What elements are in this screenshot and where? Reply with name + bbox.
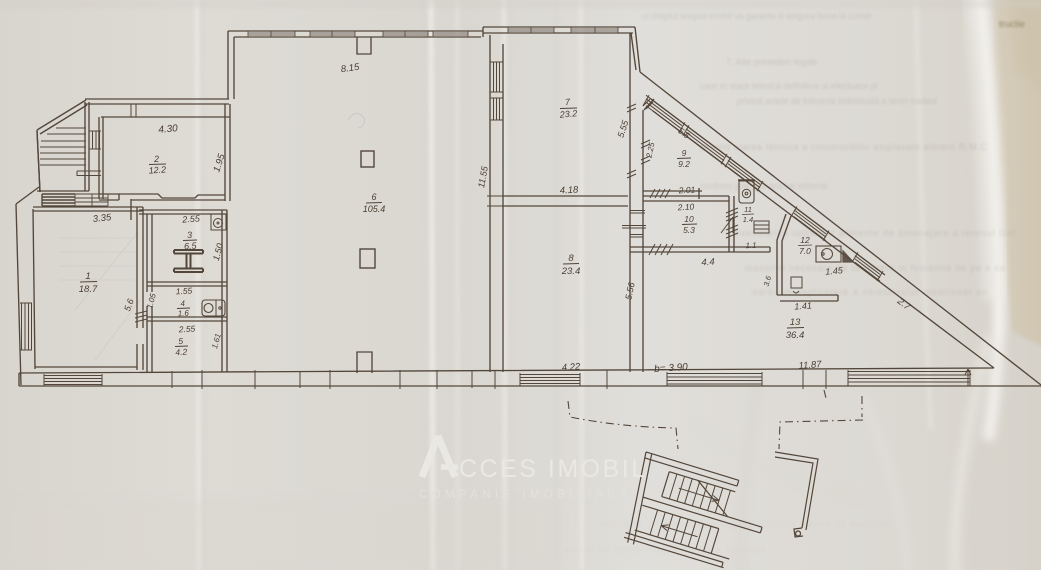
svg-text:5.3: 5.3 xyxy=(683,225,695,235)
svg-text:12.2: 12.2 xyxy=(148,164,166,175)
svg-text:2: 2 xyxy=(153,154,160,164)
svg-text:18.7: 18.7 xyxy=(79,284,98,295)
svg-text:4.18: 4.18 xyxy=(560,184,580,196)
svg-text:4.30: 4.30 xyxy=(158,123,179,136)
svg-text:4.2: 4.2 xyxy=(175,347,188,358)
svg-text:CCES IMOBIL: CCES IMOBIL xyxy=(459,455,648,483)
svg-text:8: 8 xyxy=(568,253,574,264)
svg-text:23.2: 23.2 xyxy=(558,108,577,120)
svg-text:6.5: 6.5 xyxy=(184,240,198,251)
svg-text:12: 12 xyxy=(800,235,810,245)
svg-text:9: 9 xyxy=(682,148,687,158)
svg-text:tructie: tructie xyxy=(999,19,1025,30)
svg-text:1.1: 1.1 xyxy=(745,241,757,251)
svg-text:10: 10 xyxy=(684,214,694,224)
svg-text:1.6: 1.6 xyxy=(177,309,189,319)
svg-text:9.2: 9.2 xyxy=(678,159,690,169)
svg-text:executarea lucrarilor aferente: executarea lucrarilor aferente de amenaj… xyxy=(735,228,1015,238)
svg-text:COMPANIE IMOBILIARĂ: COMPANIE IMOBILIARĂ xyxy=(419,488,632,501)
svg-text:2.55: 2.55 xyxy=(181,213,201,224)
svg-text:3.35: 3.35 xyxy=(92,212,112,225)
svg-text:11.87: 11.87 xyxy=(798,359,822,372)
svg-text:7. Alte prevederi legale: 7. Alte prevederi legale xyxy=(726,57,818,67)
svg-text:4.22: 4.22 xyxy=(561,361,581,373)
svg-text:3: 3 xyxy=(187,230,193,240)
svg-text:privind actele de folosinta in: privind actele de folosinta individuala … xyxy=(737,96,937,106)
svg-text:conform planului anexat eliber: conform planului anexat eliberat xyxy=(700,181,828,191)
svg-text:7.0: 7.0 xyxy=(799,246,811,256)
svg-text:6: 6 xyxy=(371,192,376,202)
svg-text:2.10: 2.10 xyxy=(676,202,694,213)
svg-text:1: 1 xyxy=(85,271,90,282)
svg-text:13: 13 xyxy=(790,317,801,328)
svg-text:1.55: 1.55 xyxy=(175,286,192,297)
svg-text:1.4: 1.4 xyxy=(743,215,753,224)
svg-text:4.4: 4.4 xyxy=(701,257,715,269)
svg-text:privind starea tehnica a const: privind starea tehnica a constructiilor … xyxy=(700,142,990,152)
svg-text:actul de proprietate asupra te: actul de proprietate asupra terenul xyxy=(565,544,765,554)
svg-text:23.4: 23.4 xyxy=(561,266,581,277)
svg-text:36.4: 36.4 xyxy=(786,330,805,341)
svg-text:1.41: 1.41 xyxy=(794,300,812,311)
svg-text:105.4: 105.4 xyxy=(363,204,386,214)
svg-text:care in stare tehnica definiti: care in stare tehnica definitiva si efec… xyxy=(700,81,878,91)
svg-text:ul dreptul asupra imobil va ga: ul dreptul asupra imobil va garanta si a… xyxy=(642,11,872,21)
svg-text:11: 11 xyxy=(744,205,752,214)
svg-text:2.01: 2.01 xyxy=(677,185,695,196)
svg-text:2.55: 2.55 xyxy=(177,324,195,335)
svg-text:1.45: 1.45 xyxy=(825,265,844,277)
svg-text:5: 5 xyxy=(178,336,184,346)
svg-text:conform prevederilor legale pr: conform prevederilor legale privind dare… xyxy=(600,519,890,529)
